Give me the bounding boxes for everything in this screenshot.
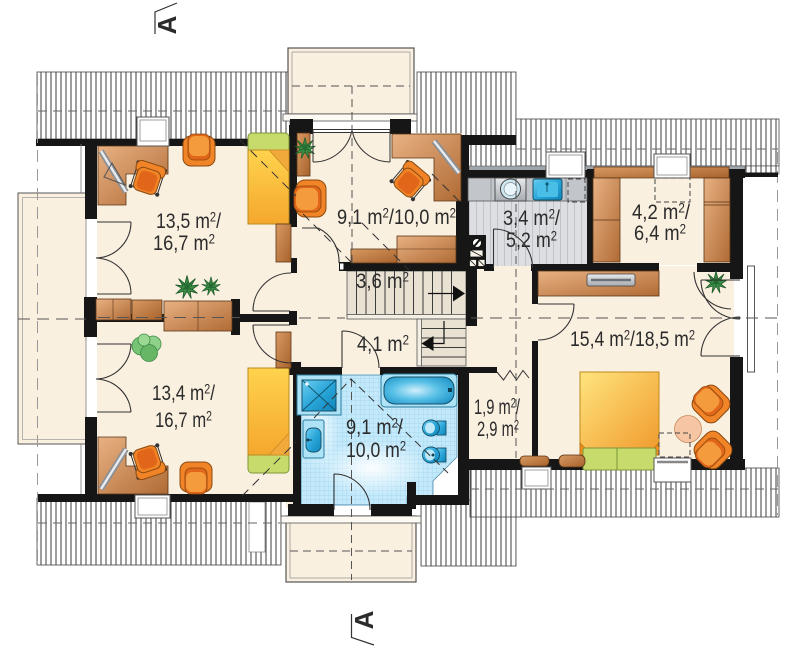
svg-text:4,1 m2: 4,1 m2 <box>357 332 409 356</box>
svg-text:10,0 m2: 10,0 m2 <box>346 438 406 462</box>
svg-text:16,7 m2: 16,7 m2 <box>153 231 215 255</box>
svg-text:A: A <box>152 15 182 34</box>
svg-text:2,9 m2: 2,9 m2 <box>477 417 519 441</box>
svg-text:5,2 m2: 5,2 m2 <box>506 228 557 252</box>
svg-text:6,4 m2: 6,4 m2 <box>634 221 686 245</box>
svg-text:A: A <box>349 610 379 629</box>
svg-text:16,7 m2: 16,7 m2 <box>155 408 212 432</box>
svg-text:3,6 m2: 3,6 m2 <box>356 269 409 293</box>
svg-text:9,1 m2/10,0 m2: 9,1 m2/10,0 m2 <box>337 205 456 229</box>
svg-text:15,4 m2/18,5 m2: 15,4 m2/18,5 m2 <box>570 327 695 351</box>
